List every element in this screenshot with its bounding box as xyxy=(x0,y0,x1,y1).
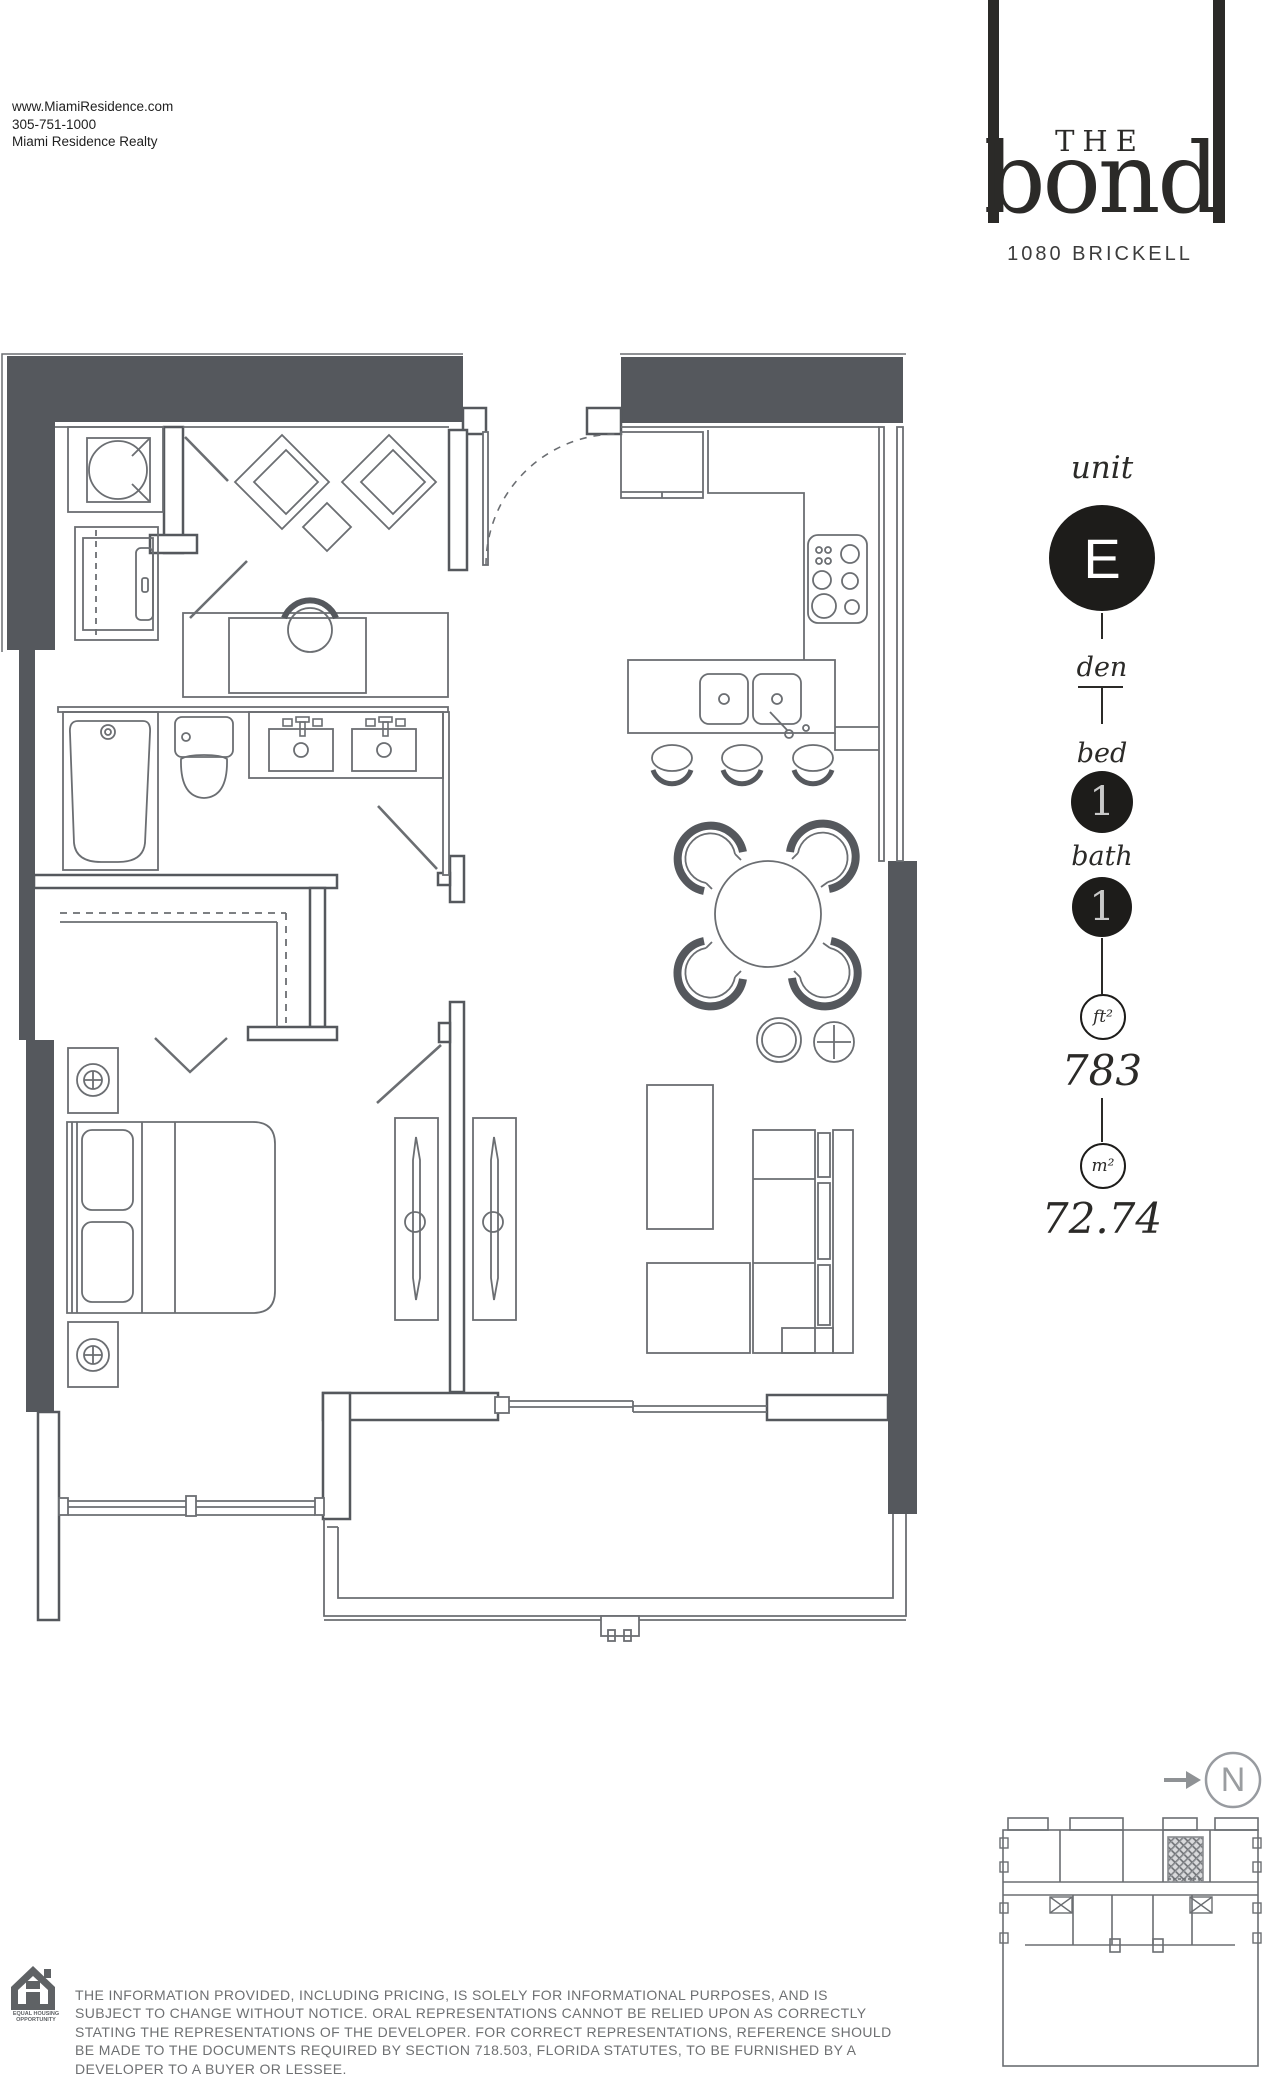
sliding-door xyxy=(495,1397,767,1413)
equal-housing-icon xyxy=(11,1966,55,2010)
keyplan xyxy=(1000,1818,1261,2066)
keyplan-unit-highlight xyxy=(1168,1837,1203,1882)
bath-count: 1 xyxy=(1089,884,1114,930)
unit-label: unit xyxy=(1002,450,1202,486)
walls-white xyxy=(34,408,888,1620)
den-door xyxy=(190,561,247,618)
bed-label: bed xyxy=(1002,738,1202,769)
bathroom-door xyxy=(378,806,437,869)
ceiling-fixtures xyxy=(757,1018,854,1062)
foyer-armchair xyxy=(68,427,163,512)
bar-stools xyxy=(652,745,833,784)
sqft-unit: ft² xyxy=(1093,1007,1113,1027)
walls-thin xyxy=(58,427,903,875)
bath-label: bath xyxy=(1002,841,1202,872)
sqft-value: 783 xyxy=(1002,1046,1202,1095)
connector-line xyxy=(1101,688,1103,724)
sqft-unit-badge: ft² xyxy=(1080,994,1126,1040)
floorplan-sheet: www.MiamiResidence.com 305-751-1000 Miam… xyxy=(0,0,1262,2075)
equal-housing-label: EQUAL HOUSING OPPORTUNITY xyxy=(4,2011,68,2023)
connector-line xyxy=(1101,1098,1103,1142)
living-room xyxy=(647,1085,853,1353)
north-label: N xyxy=(1206,1753,1260,1807)
connector-line xyxy=(1101,613,1103,639)
unit-value: E xyxy=(1083,526,1120,591)
logo-address: 1080 BRICKELL xyxy=(975,243,1225,266)
sqm-value: 72.74 xyxy=(1002,1194,1202,1243)
floor-plan-drawing xyxy=(0,0,1262,2075)
bed-count: 1 xyxy=(1089,779,1114,825)
dining-set xyxy=(677,824,857,1007)
den-desk xyxy=(183,600,448,697)
legal-disclaimer: THE INFORMATION PROVIDED, INCLUDING PRIC… xyxy=(75,1986,1025,2075)
den-label: den xyxy=(1002,652,1202,683)
logo-bond: bond xyxy=(968,133,1232,225)
foyer-diamond-chairs xyxy=(235,435,436,551)
bedroom-door xyxy=(377,1045,441,1103)
connector-line xyxy=(1101,938,1103,994)
bathroom xyxy=(63,712,443,870)
bedroom xyxy=(67,1048,275,1387)
contact-info: www.MiamiResidence.com 305-751-1000 Miam… xyxy=(12,98,173,151)
sqm-unit-badge: m² xyxy=(1080,1143,1126,1189)
bed-count-badge: 1 xyxy=(1071,771,1133,833)
laundry-closet xyxy=(75,527,158,640)
bedroom-window xyxy=(59,1496,324,1516)
bath-count-badge: 1 xyxy=(1072,877,1132,937)
foyer-closet-door xyxy=(185,437,228,481)
balcony xyxy=(324,1514,906,1641)
sqm-unit: m² xyxy=(1092,1156,1115,1176)
kitchen xyxy=(621,430,879,750)
unit-value-badge: E xyxy=(1049,505,1155,611)
entry-door xyxy=(483,432,617,565)
